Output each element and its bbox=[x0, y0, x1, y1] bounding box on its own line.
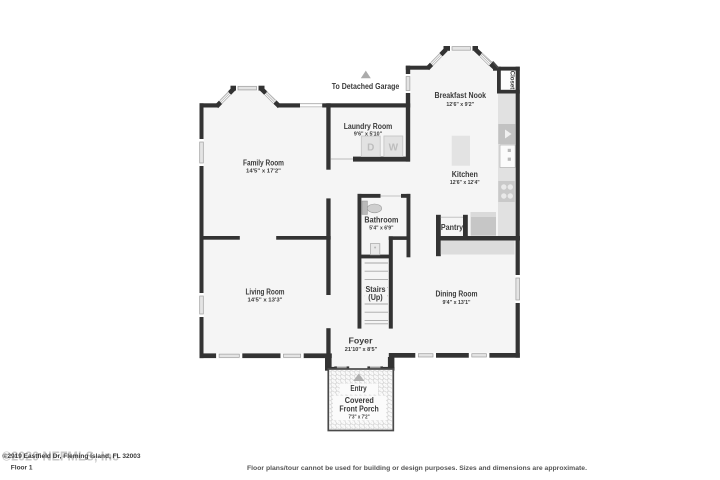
svg-text:Front Porch: Front Porch bbox=[339, 404, 378, 414]
svg-text:Foyer: Foyer bbox=[349, 335, 374, 345]
svg-text:©2919 Eastfield Dr, Fleming Is: ©2919 Eastfield Dr, Fleming Island, FL 3… bbox=[3, 452, 141, 460]
svg-text:21'10" x 8'5": 21'10" x 8'5" bbox=[345, 347, 378, 353]
svg-text:Living Room: Living Room bbox=[246, 286, 285, 296]
svg-text:7'3" x 7'2": 7'3" x 7'2" bbox=[349, 415, 370, 421]
svg-text:Floor 1: Floor 1 bbox=[11, 464, 33, 471]
svg-text:D: D bbox=[367, 143, 374, 154]
svg-text:9'6" x 5'10": 9'6" x 5'10" bbox=[354, 131, 383, 137]
svg-text:Breakfast Nook: Breakfast Nook bbox=[435, 90, 487, 100]
svg-text:12'6" x 12'4": 12'6" x 12'4" bbox=[450, 180, 480, 186]
svg-text:Kitchen: Kitchen bbox=[452, 169, 478, 179]
svg-text:9'4" x 13'1": 9'4" x 13'1" bbox=[443, 300, 471, 306]
svg-text:Closet: Closet bbox=[509, 71, 515, 90]
svg-text:Pantry: Pantry bbox=[441, 222, 463, 232]
svg-text:W: W bbox=[389, 143, 399, 154]
svg-text:5'4" x 6'9": 5'4" x 6'9" bbox=[369, 226, 394, 232]
svg-text:Floor plans/tour cannot be use: Floor plans/tour cannot be used for buil… bbox=[247, 465, 587, 472]
svg-text:(Up): (Up) bbox=[368, 292, 383, 302]
svg-text:Entry: Entry bbox=[350, 383, 366, 393]
svg-text:Family Room: Family Room bbox=[243, 157, 284, 167]
svg-text:To Detached Garage: To Detached Garage bbox=[332, 81, 400, 91]
svg-text:14'5" x 13'3": 14'5" x 13'3" bbox=[248, 297, 283, 303]
svg-text:12'6" x 9'2": 12'6" x 9'2" bbox=[446, 102, 474, 108]
svg-text:Bathroom: Bathroom bbox=[364, 215, 398, 225]
svg-text:Laundry Room: Laundry Room bbox=[344, 121, 393, 131]
svg-text:Dining Room: Dining Room bbox=[436, 289, 478, 299]
svg-text:14'5" x 17'2": 14'5" x 17'2" bbox=[246, 168, 281, 174]
